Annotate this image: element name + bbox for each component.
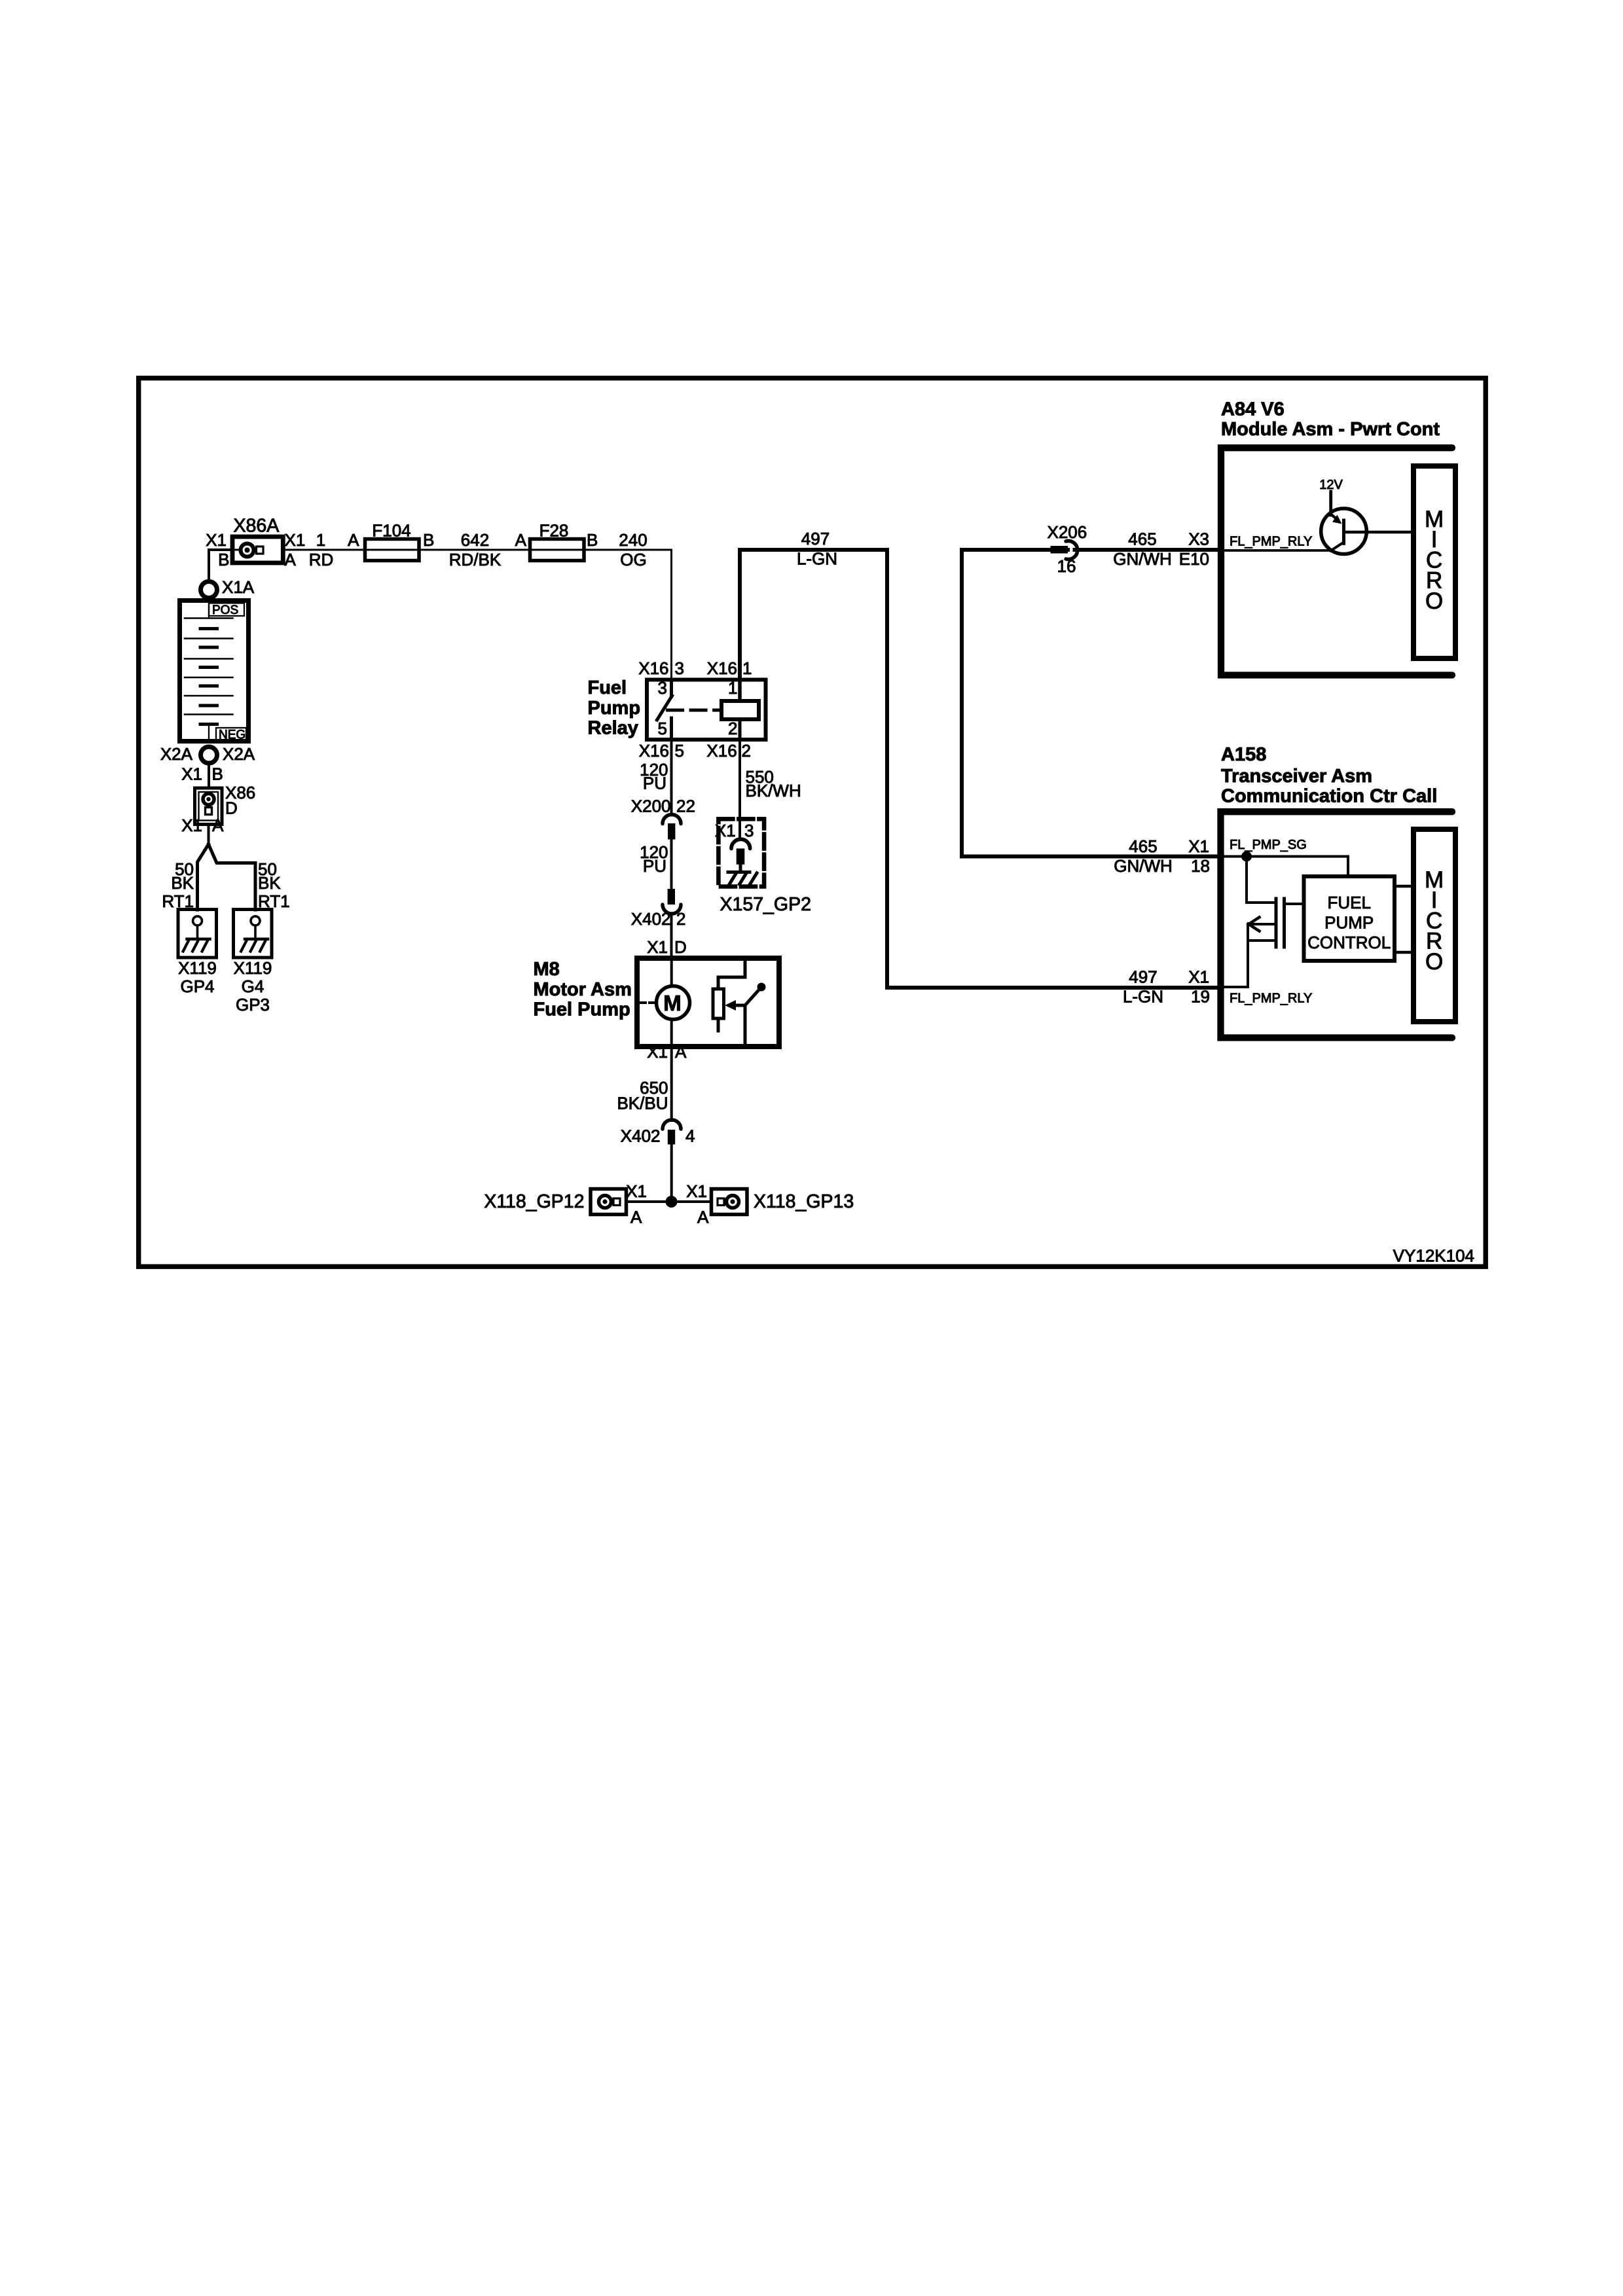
svg-text:PU: PU	[643, 856, 666, 876]
svg-text:X1: X1	[626, 1181, 647, 1201]
svg-text:VY12K104: VY12K104	[1393, 1246, 1474, 1266]
svg-text:A84 V6: A84 V6	[1221, 399, 1285, 420]
svg-text:2: 2	[676, 909, 685, 929]
svg-text:A: A	[212, 816, 224, 835]
svg-text:X402: X402	[621, 1126, 661, 1146]
svg-text:3: 3	[744, 821, 754, 840]
svg-text:Motor Asm: Motor Asm	[534, 979, 632, 1000]
svg-text:X1: X1	[181, 816, 202, 835]
svg-text:A: A	[697, 1208, 709, 1227]
svg-text:D: D	[674, 937, 687, 957]
svg-text:X1: X1	[206, 530, 227, 550]
svg-text:497: 497	[1129, 967, 1157, 987]
svg-text:X16: X16	[638, 658, 668, 678]
svg-text:D: D	[225, 798, 238, 818]
svg-text:4: 4	[685, 1126, 695, 1146]
svg-text:X119: X119	[234, 958, 272, 978]
svg-text:BK: BK	[171, 873, 194, 893]
svg-text:A: A	[285, 550, 297, 569]
svg-text:3: 3	[658, 678, 667, 698]
svg-text:X206: X206	[1048, 522, 1087, 542]
svg-text:X118_GP13: X118_GP13	[754, 1191, 854, 1212]
svg-text:Relay: Relay	[588, 718, 638, 739]
svg-text:X1: X1	[285, 530, 306, 550]
svg-text:M: M	[663, 991, 682, 1015]
svg-text:X119: X119	[178, 958, 217, 978]
svg-text:X1: X1	[686, 1181, 707, 1201]
svg-text:X86A: X86A	[234, 516, 280, 537]
svg-text:B: B	[587, 530, 598, 550]
svg-text:O: O	[1425, 949, 1443, 975]
svg-text:2: 2	[742, 741, 751, 761]
svg-text:X1: X1	[715, 821, 736, 840]
svg-text:X118_GP12: X118_GP12	[484, 1191, 584, 1212]
svg-text:RD: RD	[309, 550, 334, 569]
svg-text:FL_PMP_RLY: FL_PMP_RLY	[1230, 535, 1312, 549]
svg-text:1: 1	[316, 530, 325, 550]
svg-text:X3: X3	[1188, 529, 1209, 549]
svg-text:X1: X1	[647, 937, 668, 957]
svg-text:O: O	[1425, 588, 1443, 614]
svg-text:497: 497	[801, 529, 830, 548]
svg-text:465: 465	[1129, 836, 1157, 856]
svg-text:PUMP: PUMP	[1324, 913, 1374, 933]
svg-text:22: 22	[676, 797, 695, 816]
svg-text:L-GN: L-GN	[1123, 987, 1163, 1007]
svg-text:1: 1	[742, 658, 752, 678]
svg-text:OG: OG	[620, 550, 646, 569]
svg-text:X2A: X2A	[160, 744, 193, 764]
svg-text:G4: G4	[242, 977, 264, 996]
svg-text:Fuel Pump: Fuel Pump	[534, 999, 630, 1020]
svg-text:CONTROL: CONTROL	[1307, 933, 1391, 952]
svg-text:2: 2	[728, 719, 737, 738]
svg-text:BK: BK	[258, 873, 281, 893]
svg-text:BK/BU: BK/BU	[617, 1094, 668, 1113]
svg-text:Transceiver Asm: Transceiver Asm	[1221, 766, 1372, 787]
svg-text:B: B	[423, 530, 434, 550]
svg-text:L-GN: L-GN	[797, 549, 837, 569]
svg-text:NEG: NEG	[219, 728, 246, 742]
svg-text:5: 5	[675, 741, 684, 761]
svg-text:1: 1	[728, 678, 737, 698]
svg-text:240: 240	[619, 530, 647, 550]
svg-text:Module Asm - Pwrt Cont: Module Asm - Pwrt Cont	[1221, 419, 1440, 440]
svg-text:X2A: X2A	[223, 744, 255, 764]
svg-text:A158: A158	[1221, 744, 1266, 765]
svg-text:X157_GP2: X157_GP2	[720, 894, 811, 915]
svg-text:A: A	[675, 1042, 687, 1062]
svg-text:3: 3	[675, 658, 684, 678]
svg-text:RD/BK: RD/BK	[449, 550, 501, 569]
svg-text:465: 465	[1128, 529, 1156, 549]
svg-text:FL_PMP_RLY: FL_PMP_RLY	[1230, 992, 1312, 1006]
svg-text:X16: X16	[706, 741, 737, 761]
svg-text:Communication Ctr Call: Communication Ctr Call	[1221, 786, 1437, 807]
svg-text:Pump: Pump	[588, 698, 641, 719]
svg-text:FL_PMP_SG: FL_PMP_SG	[1230, 838, 1307, 852]
svg-text:PU: PU	[643, 774, 666, 793]
svg-text:X1: X1	[1188, 836, 1209, 856]
svg-text:GP3: GP3	[236, 995, 270, 1014]
svg-text:M8: M8	[534, 959, 560, 980]
svg-text:A: A	[630, 1208, 642, 1227]
svg-text:BK/WH: BK/WH	[746, 781, 801, 800]
svg-text:X1: X1	[647, 1042, 668, 1062]
svg-text:X16: X16	[639, 741, 669, 761]
svg-text:X16: X16	[707, 658, 737, 678]
svg-text:X402: X402	[631, 909, 671, 929]
svg-text:X1: X1	[1188, 967, 1209, 987]
svg-text:18: 18	[1191, 856, 1210, 876]
svg-text:GP4: GP4	[180, 977, 214, 996]
svg-text:E10: E10	[1179, 549, 1209, 569]
svg-text:A: A	[348, 530, 359, 550]
svg-text:GN/WH: GN/WH	[1113, 549, 1172, 569]
svg-text:X1A: X1A	[222, 577, 255, 597]
svg-text:16: 16	[1057, 556, 1076, 576]
svg-text:B: B	[218, 550, 229, 569]
svg-text:19: 19	[1191, 987, 1210, 1007]
svg-text:POS: POS	[212, 603, 238, 617]
svg-text:B: B	[212, 764, 223, 784]
svg-text:GN/WH: GN/WH	[1114, 856, 1173, 876]
svg-text:Fuel: Fuel	[588, 677, 627, 698]
svg-text:FUEL: FUEL	[1327, 893, 1370, 912]
svg-text:X200: X200	[631, 797, 671, 816]
svg-text:642: 642	[461, 530, 489, 550]
svg-text:X1: X1	[181, 764, 202, 784]
svg-text:A: A	[515, 530, 527, 550]
svg-text:5: 5	[658, 719, 667, 738]
